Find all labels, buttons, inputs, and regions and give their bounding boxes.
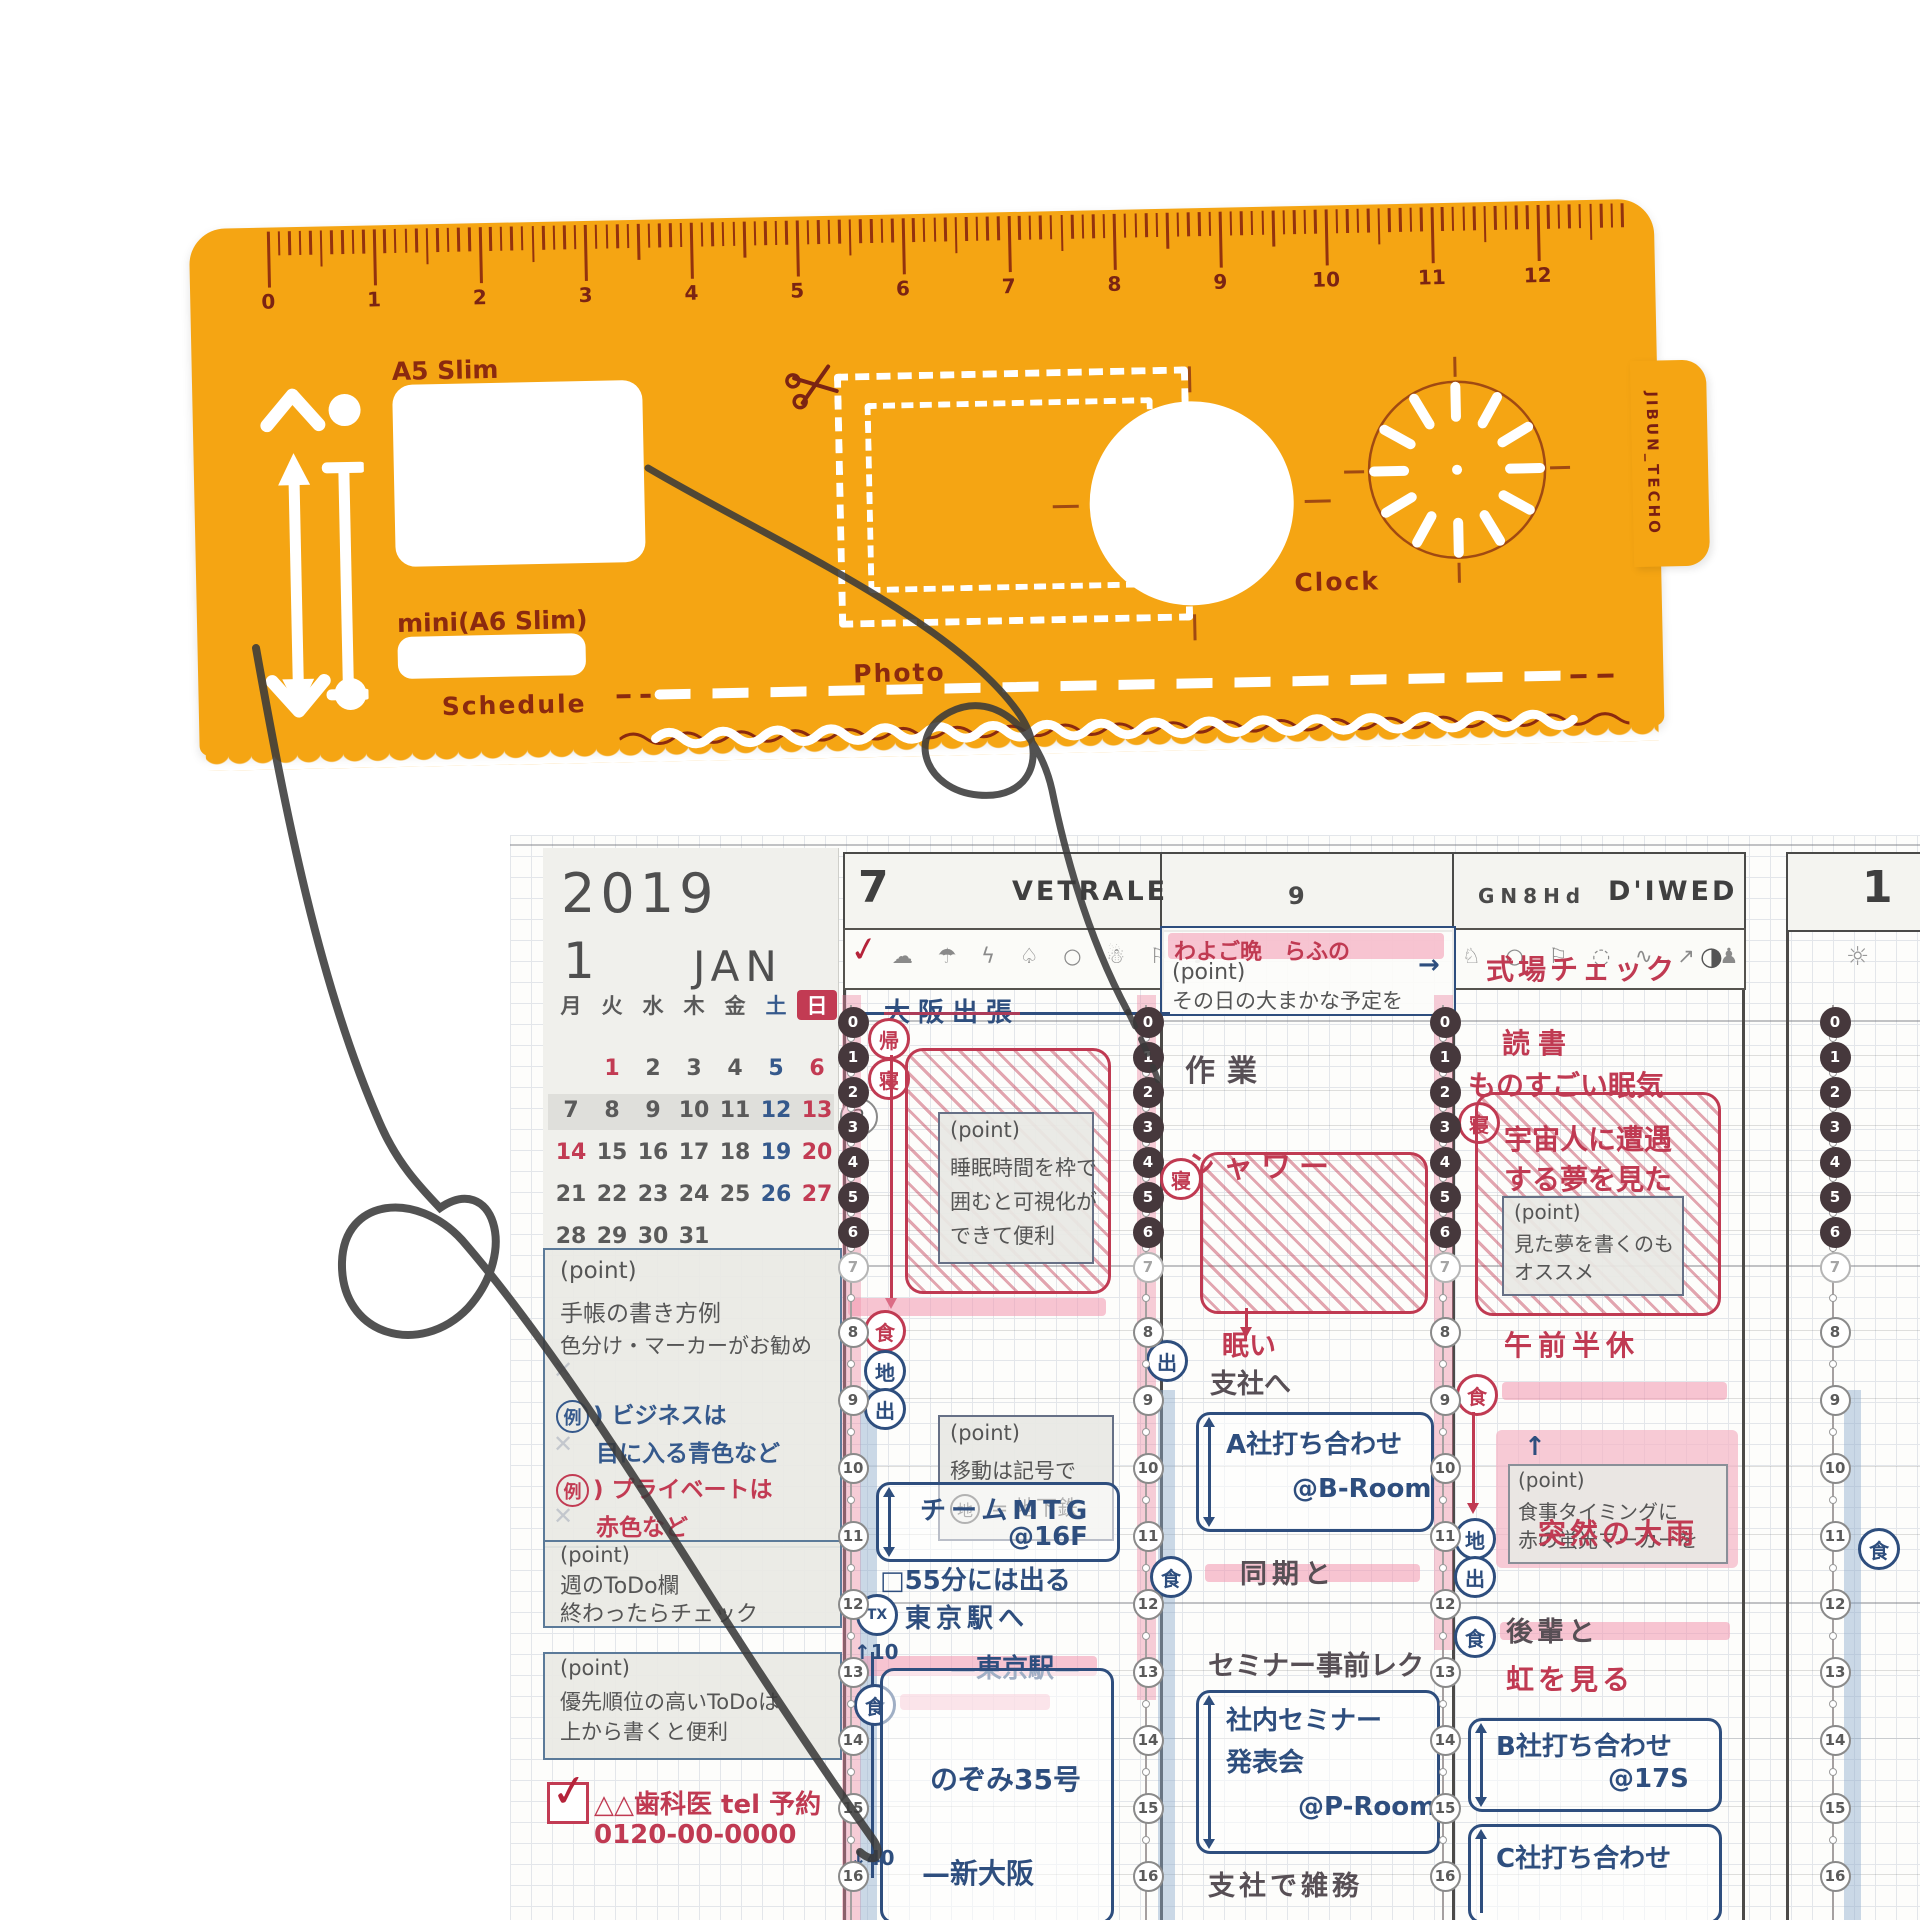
- time-bead: 11: [838, 1521, 869, 1552]
- time-bead: 10: [1133, 1453, 1164, 1484]
- day2-note-title: (point): [1172, 960, 1245, 985]
- calendar-date: 27: [797, 1182, 837, 1207]
- ruler-tick: [626, 224, 629, 248]
- note-title: (point): [950, 1118, 1020, 1142]
- calendar-weekday: 土: [756, 990, 796, 1020]
- calendar-date: 2: [633, 1056, 673, 1081]
- time-bead: 11: [1820, 1521, 1851, 1552]
- arrow-up-icon: ↑: [1524, 1432, 1546, 1462]
- calendar-date: 23: [633, 1182, 673, 1207]
- duration-arrow-icon: [1480, 1729, 1483, 1801]
- day2-header: [1160, 852, 1456, 932]
- ruler-tick: [1240, 211, 1243, 235]
- ruler-tick: [1526, 205, 1529, 229]
- spine-mid-dot: [1829, 1836, 1837, 1844]
- calendar-date: 22: [592, 1182, 632, 1207]
- calendar-date: 26: [756, 1182, 796, 1207]
- time-bead: 9: [1820, 1385, 1851, 1416]
- work-label: 作業: [1185, 1046, 1269, 1090]
- calendar-date: 17: [674, 1140, 714, 1165]
- stencil-side-tab: JIBUN_TECHO: [1630, 360, 1710, 568]
- event-title: A社打ち合わせ: [1226, 1424, 1402, 1461]
- ruler-number: 7: [988, 274, 1028, 299]
- calendar-date: 30: [633, 1224, 673, 1249]
- calendar-date: 28: [551, 1224, 591, 1249]
- arrow-right-icon: →: [1418, 950, 1440, 980]
- ruler-tick: [1145, 213, 1148, 237]
- train-dest: —新大阪: [922, 1852, 1034, 1892]
- venue-check: 式場チェック: [1486, 948, 1678, 988]
- x-swatch: ✕: [553, 1430, 573, 1458]
- calendar-month-abbr: JAN: [693, 942, 783, 991]
- example-paren: ): [593, 1477, 604, 1503]
- ruler-tick: [521, 226, 524, 250]
- calendar-date: 29: [592, 1224, 632, 1249]
- a6-window-cutout: [397, 633, 586, 679]
- ruler-tick: [700, 222, 703, 246]
- calendar-date: 10: [674, 1098, 714, 1123]
- calendar-weekday: 水: [633, 990, 673, 1020]
- spine-mid-dot: [1829, 1768, 1837, 1776]
- calendar-date: 31: [674, 1224, 714, 1249]
- chevron-down-icon: [272, 681, 325, 712]
- clock-center-dot: [1452, 465, 1462, 475]
- time-bead: 2: [1820, 1077, 1851, 1108]
- ruler-tick: [563, 225, 566, 249]
- calendar-date: 15: [592, 1140, 632, 1165]
- time-bead: 4: [1133, 1147, 1164, 1178]
- jibun-techo-stencil: JIBUN_TECHO 0123456789101112 A5 Slim min…: [189, 199, 1665, 775]
- spine-mid-dot: [1439, 1360, 1447, 1368]
- time-bead: 12: [1133, 1589, 1164, 1620]
- ruler-tick: [1621, 203, 1624, 227]
- time-bead: 4: [1430, 1147, 1461, 1178]
- time-bead: 15: [1133, 1793, 1164, 1824]
- ruler-tick: [1229, 211, 1232, 235]
- calendar-date: 7: [551, 1098, 591, 1123]
- event-location: @B-Room: [1292, 1474, 1431, 1504]
- ruler-tick: [1356, 209, 1359, 233]
- planner-top-rule: [510, 844, 1920, 846]
- ruler-tick: [1578, 204, 1581, 228]
- crosshair-e: [1305, 499, 1331, 503]
- badge-meal: 食: [1454, 1616, 1496, 1658]
- tip1-example1: 例) ビジネスは: [556, 1396, 727, 1433]
- ruler-number: 6: [883, 276, 923, 301]
- time-bead: 14: [1820, 1725, 1851, 1756]
- time-bead: 8: [838, 1317, 869, 1348]
- spine-mid-dot: [847, 1360, 855, 1368]
- a5-label: A5 Slim: [391, 355, 498, 386]
- ruler-tick: [383, 229, 386, 253]
- ruler-tick: [1335, 209, 1338, 233]
- time-bead: 4: [838, 1147, 869, 1178]
- time-bead: 14: [1430, 1725, 1461, 1756]
- time-bead: 8: [1820, 1317, 1851, 1348]
- ruler-tick: [1367, 209, 1370, 233]
- time-bead: 6: [838, 1217, 869, 1248]
- tip1-line1: 手帳の書き方例: [560, 1294, 721, 1328]
- spine-mid-dot: [1142, 1294, 1150, 1302]
- ruler-tick: [500, 227, 503, 251]
- calendar-date: 24: [674, 1182, 714, 1207]
- half-day-off: 午前半休: [1504, 1324, 1640, 1364]
- badge-return: 帰: [868, 1018, 910, 1060]
- ruler-tick: [775, 221, 778, 245]
- ruler-tick: [986, 217, 989, 241]
- event-location: @16F: [1008, 1522, 1088, 1552]
- badge-sleep: 寝: [1160, 1158, 1202, 1200]
- ruler-tick: [1282, 210, 1285, 234]
- ruler-tick: [933, 218, 936, 242]
- calendar-weekday: 火: [592, 990, 632, 1020]
- time-bead: 5: [838, 1182, 869, 1213]
- tip3-line2: 上から書くと便利: [560, 1716, 728, 1746]
- time-bead: 10: [1820, 1453, 1851, 1484]
- tip1-example2: 例) プライベートは: [556, 1470, 773, 1507]
- spine-mid-dot: [1439, 1294, 1447, 1302]
- crosshair-w: [1053, 505, 1079, 509]
- spine-mid-dot: [847, 1768, 855, 1776]
- ruler-number: 2: [460, 285, 500, 310]
- spine-mid-dot: [1142, 1632, 1150, 1640]
- calendar-date: 8: [592, 1098, 632, 1123]
- spine-mid-dot: [1142, 1428, 1150, 1436]
- calendar-weekday: 月: [551, 990, 591, 1020]
- hour-line: [843, 1398, 1920, 1399]
- time-bead: 16: [1133, 1861, 1164, 1892]
- bottom-cutout-icons: [258, 662, 369, 734]
- calendar-month: 1: [563, 932, 595, 990]
- ruler-tick: [1071, 215, 1074, 239]
- time-bead: 0: [1133, 1007, 1164, 1038]
- sleepy-label: 眠い: [1222, 1324, 1276, 1363]
- time-bead: 5: [1430, 1182, 1461, 1213]
- ruler-tick: [510, 226, 513, 250]
- brand-label: JIBUN_TECHO: [1642, 391, 1663, 536]
- ruler-tick: [1050, 215, 1053, 239]
- note-line: 見た夢を書くのも: [1514, 1228, 1674, 1257]
- note-title: (point): [950, 1421, 1020, 1445]
- arrow-down-line: [1472, 1412, 1475, 1510]
- time-bead: 7: [1430, 1252, 1461, 1283]
- ruler-tick: [1018, 216, 1021, 240]
- ruler-tick: [351, 230, 354, 254]
- chevron-up-icon: [266, 395, 319, 426]
- todo-phone: 0120-00-0000: [594, 1820, 797, 1850]
- ruler-tick: [489, 227, 492, 251]
- ruler-tick: [288, 231, 291, 255]
- schedule-label: Schedule: [442, 689, 587, 721]
- badge-depart: 出: [864, 1388, 906, 1430]
- ruler-tick: [1420, 207, 1423, 231]
- leave-note: □55分には出る: [880, 1560, 1071, 1597]
- time-bead: 16: [838, 1861, 869, 1892]
- time-bead: 9: [838, 1385, 869, 1416]
- clock-label: Clock: [1294, 566, 1380, 597]
- time-bead: 16: [1820, 1861, 1851, 1892]
- spine-mid-dot: [1142, 1768, 1150, 1776]
- badge-sleep: 寝: [868, 1058, 910, 1100]
- spine-mid-dot: [1142, 1564, 1150, 1572]
- calendar-date: 5: [756, 1056, 796, 1081]
- dream-line: 宇宙人に遭遇: [1504, 1118, 1672, 1158]
- spine-mid-dot: [1829, 1632, 1837, 1640]
- duration-arrow-icon: [1208, 1423, 1211, 1521]
- ruler-tick: [394, 229, 397, 253]
- reading-label: 読書: [1502, 1022, 1574, 1062]
- ruler-tick: [362, 230, 365, 254]
- time-bead: 5: [1820, 1182, 1851, 1213]
- dot-icon: [334, 678, 367, 711]
- time-bead: 14: [1133, 1725, 1164, 1756]
- mini-calendar: 2019 1 JAN 月火水木金土日 123456789101112131415…: [543, 848, 839, 1248]
- time-bead: 6: [1133, 1217, 1164, 1248]
- ruler-tick: [817, 220, 820, 244]
- ruler-tick: [1124, 214, 1127, 238]
- event-line: 発表会: [1226, 1742, 1304, 1779]
- time-bead: 11: [1133, 1521, 1164, 1552]
- dash-line-end: [617, 694, 651, 699]
- time-bead: 12: [1820, 1589, 1851, 1620]
- calendar-date: 20: [797, 1140, 837, 1165]
- ruler-number: 11: [1412, 265, 1452, 290]
- time-bead: 2: [1430, 1077, 1461, 1108]
- ruler-tick: [447, 228, 450, 252]
- time-bead: 13: [1820, 1657, 1851, 1688]
- dream-line: する夢を見た: [1504, 1158, 1672, 1198]
- ruler-number: 9: [1200, 269, 1240, 294]
- time-bead: 13: [838, 1657, 869, 1688]
- time-bead: 15: [1430, 1793, 1461, 1824]
- event-location: @17S: [1608, 1764, 1689, 1794]
- badge-meal: 食: [1858, 1528, 1900, 1570]
- note-line: 睡眠時間を枠で: [950, 1152, 1097, 1182]
- tip1-ex1-detail: 目に入る青色など: [596, 1434, 780, 1468]
- ruler-tick: [880, 219, 883, 243]
- hour-line: [843, 1330, 1920, 1331]
- ruler-tick: [1557, 205, 1560, 229]
- day4-header: [1786, 852, 1920, 932]
- time-bead: 13: [1430, 1657, 1461, 1688]
- x-swatch: ✕: [553, 1502, 573, 1530]
- note-line: オススメ: [1514, 1256, 1594, 1285]
- time-bead: 3: [1430, 1112, 1461, 1143]
- ruler-tick: [1568, 204, 1571, 228]
- ruler-tick: [1208, 212, 1211, 236]
- ruler-tick: [1028, 216, 1031, 240]
- time-bead: 7: [1133, 1252, 1164, 1283]
- tip1-title: (point): [560, 1258, 637, 1284]
- ruler-tick: [1251, 211, 1254, 235]
- ruler-tick: [753, 221, 756, 245]
- spine-mid-dot: [847, 1700, 855, 1708]
- time-bead: 5: [1133, 1182, 1164, 1213]
- tip3-title: (point): [560, 1656, 630, 1680]
- ruler-tick: [1155, 213, 1158, 237]
- ruler-tick: [1314, 210, 1317, 234]
- time-bead: 10: [838, 1453, 869, 1484]
- time-bead: 13: [1133, 1657, 1164, 1688]
- ruler-number: 0: [248, 289, 288, 314]
- calendar-weekday: 金: [715, 990, 755, 1020]
- calendar-date: 9: [633, 1098, 673, 1123]
- trip-label: 大阪出張: [884, 992, 1020, 1029]
- duration-arrow-icon: [1480, 1835, 1483, 1913]
- spine-mid-dot: [1829, 1700, 1837, 1708]
- spine-mid-dot: [1439, 1768, 1447, 1776]
- note-line: 移動は記号で: [950, 1455, 1076, 1485]
- ruler-tick: [1081, 215, 1084, 239]
- time-bead: 15: [838, 1793, 869, 1824]
- event-title: 社内セミナー: [1226, 1700, 1382, 1737]
- ruler-tick: [1388, 208, 1391, 232]
- time-bead: 0: [838, 1007, 869, 1038]
- rain-label: 突然の大雨: [1538, 1512, 1698, 1552]
- moon-icon: ◑: [1700, 942, 1723, 972]
- time-bead: 1: [1133, 1042, 1164, 1073]
- time-bead: 7: [1820, 1252, 1851, 1283]
- time-bead: 0: [1430, 1007, 1461, 1038]
- time-bead: 3: [838, 1112, 869, 1143]
- spine-mid-dot: [1142, 1700, 1150, 1708]
- sleep-block-hatched: [1200, 1152, 1428, 1314]
- day-divider: [1742, 852, 1745, 1920]
- ruler-number: 1: [354, 287, 394, 312]
- ruler-tick: [1092, 214, 1095, 238]
- ruler-tick: [552, 226, 555, 250]
- crosshair-n: [1188, 366, 1192, 392]
- spine-mid-dot: [847, 1564, 855, 1572]
- ruler-tick: [997, 216, 1000, 240]
- example-paren: ): [593, 1403, 604, 1429]
- calendar-date: 18: [715, 1140, 755, 1165]
- spine-mid-dot: [1439, 1564, 1447, 1572]
- tip1-ex2-detail: 赤色など: [596, 1508, 688, 1542]
- ruler-tick: [1600, 204, 1603, 228]
- ibeam-top: [322, 462, 366, 474]
- day2-number: 9: [1288, 882, 1305, 910]
- to-branch: 支社へ: [1210, 1362, 1291, 1401]
- ruler-tick: [838, 220, 841, 244]
- time-bead: 6: [1430, 1217, 1461, 1248]
- sleep-arrow-line: [890, 1055, 893, 1305]
- day-divider: [1786, 852, 1789, 1920]
- ruler-tick: [1473, 206, 1476, 230]
- ruler-tick: [785, 221, 788, 245]
- ruler-tick: [711, 222, 714, 246]
- highlight-band: [1502, 1382, 1727, 1400]
- ruler-tick: [965, 217, 968, 241]
- ruler-tick: [859, 219, 862, 243]
- ruler-tick: [1547, 205, 1550, 229]
- ruler-number: 12: [1517, 263, 1557, 288]
- spine-mid-dot: [1142, 1496, 1150, 1504]
- spine-mid-dot: [1829, 1360, 1837, 1368]
- spine-mid-dot: [1829, 1496, 1837, 1504]
- spine-mid-dot: [1142, 1360, 1150, 1368]
- spine-mid-dot: [1439, 1836, 1447, 1844]
- calendar-date: 25: [715, 1182, 755, 1207]
- ruler-tick: [330, 230, 333, 254]
- ruler-tick: [277, 231, 280, 255]
- spine-mid-dot: [847, 1428, 855, 1436]
- tip1-ex2-text: プライベートは: [612, 1477, 773, 1503]
- day4-number: 1: [1862, 862, 1893, 913]
- calendar-date: 16: [633, 1140, 673, 1165]
- ruler-tick: [732, 222, 735, 246]
- seminar-pre: セミナー事前レク: [1208, 1644, 1424, 1683]
- time-bead: 4: [1820, 1147, 1851, 1178]
- note-line: できて便利: [950, 1220, 1055, 1250]
- a5-window-cutout: [392, 380, 646, 567]
- ruler-tick: [648, 224, 651, 248]
- x-swatch: ✕: [553, 1356, 573, 1384]
- ibeam-shaft: [344, 468, 349, 694]
- rainbow-label: 虹を見る: [1506, 1658, 1634, 1698]
- note-line: 囲むと可視化が: [950, 1186, 1097, 1216]
- calendar-date: 14: [551, 1140, 591, 1165]
- ruler-tick: [891, 219, 894, 243]
- ruler-tick: [309, 231, 312, 255]
- ruler-tick: [870, 219, 873, 243]
- calendar-date: 21: [551, 1182, 591, 1207]
- spine-mid-dot: [847, 1294, 855, 1302]
- tip3-line1: 優先順位の高いToDoは: [560, 1686, 779, 1716]
- calendar-date: 12: [756, 1098, 796, 1123]
- ruler-tick: [574, 225, 577, 249]
- badge-depart: 出: [1454, 1556, 1496, 1598]
- spine-mid-dot: [1439, 1496, 1447, 1504]
- arrow-up-head: [277, 453, 310, 486]
- ruler-tick: [1515, 205, 1518, 229]
- ruler-tick: [542, 226, 545, 250]
- ruler-tick: [1441, 207, 1444, 231]
- time-bead: 12: [1430, 1589, 1461, 1620]
- ruler-tick: [436, 228, 439, 252]
- time-bead: 12: [838, 1589, 869, 1620]
- spine-mid-dot: [1829, 1294, 1837, 1302]
- double-arrow-shaft: [294, 479, 298, 685]
- spine-mid-dot: [1829, 1428, 1837, 1436]
- time-bead: 1: [838, 1042, 869, 1073]
- ruler-tick: [1610, 203, 1613, 227]
- calendar-date: 11: [715, 1098, 755, 1123]
- ruler-tick: [1303, 210, 1306, 234]
- ruler-tick: [1198, 212, 1201, 236]
- ruler-tick: [1039, 215, 1042, 239]
- ruler-tick: [616, 224, 619, 248]
- calendar-date: 13: [797, 1098, 837, 1123]
- event-location: @P-Room: [1298, 1792, 1436, 1822]
- train-name: のぞみ35号: [930, 1758, 1081, 1798]
- ruler-tick: [415, 228, 418, 252]
- ruler-tick: [1346, 209, 1349, 233]
- ruler-tick: [1176, 213, 1179, 237]
- time-bead: 1: [1820, 1042, 1851, 1073]
- ruler-tick: [1187, 212, 1190, 236]
- ruler-number: 3: [565, 283, 605, 308]
- ruler-number: 10: [1306, 267, 1346, 292]
- event-title: C社打ち合わせ: [1496, 1838, 1671, 1875]
- douki-label: 同期と: [1240, 1552, 1336, 1591]
- ruler-tick: [299, 231, 302, 255]
- time-bead: 15: [1820, 1793, 1851, 1824]
- ruler-number: 4: [671, 280, 711, 305]
- todo-checkmark-icon: ✓: [548, 1764, 592, 1820]
- spine-mid-dot: [1439, 1428, 1447, 1436]
- spine-mid-dot: [847, 1632, 855, 1640]
